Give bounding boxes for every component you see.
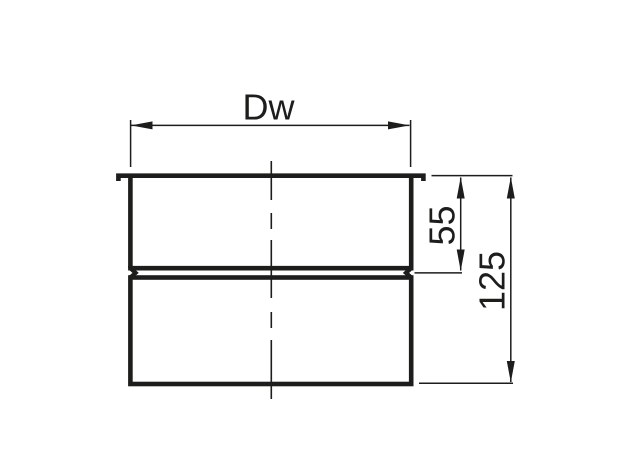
- svg-text:125: 125: [472, 251, 513, 311]
- svg-text:Dw: Dw: [243, 87, 296, 128]
- svg-text:55: 55: [422, 205, 463, 245]
